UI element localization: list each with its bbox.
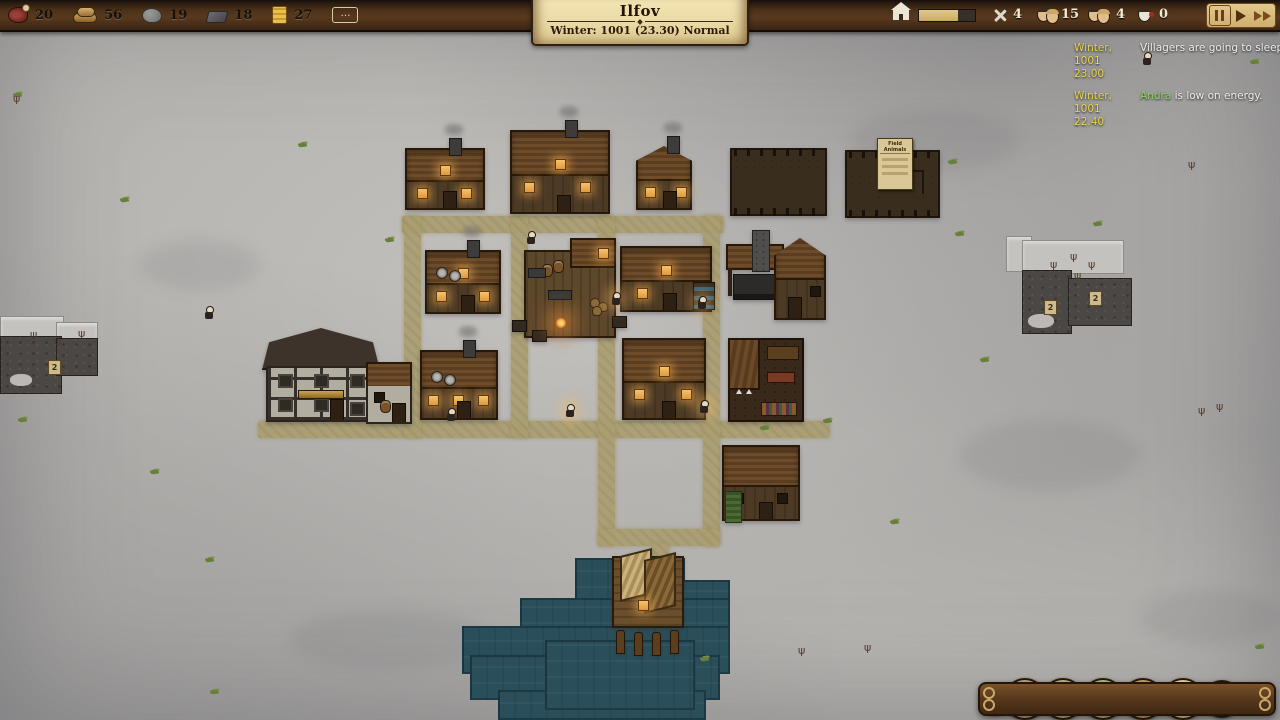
grass-tuft <box>890 519 899 524</box>
sick-icon <box>1138 7 1151 22</box>
barrel <box>380 400 391 413</box>
window <box>314 398 329 412</box>
scroll-curl <box>983 687 995 699</box>
pause-button[interactable] <box>1210 6 1230 25</box>
lit-window <box>661 265 672 276</box>
lit-window <box>681 389 692 400</box>
resource-wood[interactable]: 56 <box>73 7 122 23</box>
dead-shrub: ψ <box>1188 160 1195 170</box>
play-icon <box>1236 10 1246 22</box>
date-weather-label: Winter: 1001 (23.30) Normal <box>533 24 747 38</box>
villager[interactable] <box>566 404 574 417</box>
goods-rack <box>761 402 797 416</box>
building-house-0[interactable] <box>405 148 485 210</box>
lit-window <box>598 248 609 259</box>
chimney <box>449 138 462 156</box>
game-viewport[interactable]: Field Animalsψψψψψψψψψψψψψ222 20 56 19 1… <box>0 0 1280 720</box>
roof <box>405 148 485 182</box>
notification[interactable]: Winter, 1001 22.40 Andra is low on energ… <box>1074 90 1278 129</box>
chimney-smoke <box>459 326 477 336</box>
building-smithy[interactable] <box>726 238 826 320</box>
lit-window <box>580 182 591 193</box>
field-sign[interactable]: Field Animals <box>877 138 913 190</box>
work-table <box>528 268 546 278</box>
fence <box>734 208 823 216</box>
door <box>663 191 677 208</box>
workbench <box>767 372 795 383</box>
sick-count: 0 <box>1159 7 1168 22</box>
lit-window <box>478 395 489 406</box>
lit-window <box>555 159 566 170</box>
wood-icon <box>73 13 97 23</box>
construction-markers <box>736 379 756 398</box>
villager[interactable] <box>447 408 455 421</box>
dead-shrub: ψ <box>78 329 85 339</box>
lit-window <box>436 291 447 302</box>
lit-window <box>638 600 649 611</box>
lit-window <box>659 366 670 377</box>
lit-window <box>676 187 687 198</box>
snow-patch <box>1028 314 1054 328</box>
iron-count: 18 <box>234 8 252 23</box>
notification-message: Andra is low on energy. <box>1140 90 1262 129</box>
scroll-curl <box>1259 699 1271 711</box>
more-resources-button[interactable]: … <box>332 7 358 23</box>
grass-tuft <box>980 357 989 362</box>
play-button[interactable] <box>1231 6 1251 25</box>
wood-count: 56 <box>104 8 122 23</box>
shield-decor-icon <box>449 270 461 282</box>
building-house-2[interactable] <box>636 146 692 210</box>
grass-tuft <box>150 469 159 474</box>
villager[interactable] <box>700 400 708 413</box>
grass-tuft <box>948 159 957 164</box>
field-sign-title: Field Animals <box>880 141 910 154</box>
door <box>557 195 571 212</box>
window <box>777 493 788 504</box>
storage-hut <box>570 238 616 268</box>
grass-tuft <box>955 231 964 236</box>
notification-date: Winter, 1001 22.40 <box>1074 90 1134 129</box>
storage-shelf <box>767 346 799 360</box>
ellipsis-icon: … <box>332 7 358 23</box>
dead-shrub: ψ <box>30 330 37 340</box>
iron-icon <box>206 11 229 23</box>
grass-tuft <box>205 557 214 562</box>
chimney-smoke <box>664 122 682 132</box>
shield-decor-icon <box>431 371 443 383</box>
dead-shrub: ψ <box>864 643 871 653</box>
roof <box>622 338 706 383</box>
main-menu-toolbar <box>978 682 1276 716</box>
notification-subject: Andra <box>1140 90 1171 102</box>
crate <box>612 316 627 328</box>
fence <box>849 210 936 218</box>
military-count: 4 <box>1013 7 1022 22</box>
crate <box>532 330 547 342</box>
grass-tuft <box>120 197 129 202</box>
annex <box>366 362 412 424</box>
elevation-marker: 2 <box>1044 300 1057 315</box>
roof <box>620 246 712 282</box>
settlement-name: Ilfov <box>533 3 747 19</box>
building-field-pen-4[interactable]: Field Animals <box>845 150 940 218</box>
building-house-13[interactable] <box>722 445 800 521</box>
door <box>330 399 344 420</box>
lit-window <box>524 182 535 193</box>
villager[interactable] <box>612 292 620 305</box>
meat-count: 20 <box>35 8 53 23</box>
dead-shrub: ψ <box>54 337 61 347</box>
building-house-10[interactable] <box>420 350 498 420</box>
dead-shrub: ψ <box>1070 252 1077 262</box>
work-table <box>548 290 572 300</box>
roof <box>366 362 412 388</box>
door <box>392 403 406 422</box>
grass-tuft <box>210 689 219 694</box>
post <box>728 268 732 296</box>
roof <box>722 445 800 487</box>
sack <box>592 306 602 316</box>
chimney-smoke <box>445 124 463 134</box>
population-count: 15 <box>1061 7 1079 22</box>
campfire[interactable] <box>556 318 566 328</box>
roof <box>420 350 498 389</box>
building-house-1[interactable] <box>510 130 610 214</box>
cliff-right <box>1006 234 1132 334</box>
chimney <box>463 340 476 358</box>
resource-meat[interactable]: 20 <box>8 7 53 23</box>
roof <box>636 146 692 181</box>
resource-gold[interactable]: 27 <box>272 6 312 24</box>
grass-tuft <box>298 142 307 147</box>
elevation-marker: 2 <box>1089 291 1102 306</box>
wall <box>510 176 610 214</box>
window <box>810 286 821 297</box>
shield-decor-icon <box>444 374 456 386</box>
door <box>663 293 677 310</box>
door <box>457 401 471 418</box>
window <box>314 374 329 388</box>
fence <box>734 148 823 156</box>
building-field-pen-3[interactable] <box>730 148 827 216</box>
wall <box>420 389 498 420</box>
plant-trellis <box>725 491 742 523</box>
housing-progress-bar <box>918 9 976 22</box>
roof <box>510 130 610 176</box>
dead-shrub: ψ <box>1074 271 1081 281</box>
chimney-smoke <box>463 226 481 236</box>
snow-patch <box>10 374 32 386</box>
lit-window <box>440 165 451 176</box>
forge-house <box>774 238 826 320</box>
roof <box>425 250 501 285</box>
resource-row: 20 56 19 18 27 … <box>8 0 358 30</box>
door <box>443 191 457 208</box>
lit-window <box>417 188 428 199</box>
dock-post <box>634 632 643 656</box>
door <box>788 297 802 318</box>
scroll-curl <box>1259 687 1271 699</box>
elevation-marker: 2 <box>48 360 61 375</box>
adults-icon <box>1097 9 1110 24</box>
dock-post <box>652 632 661 656</box>
window <box>350 374 365 388</box>
population-icon <box>1046 9 1059 24</box>
stone-icon <box>142 8 162 23</box>
building-house-11[interactable] <box>622 338 706 420</box>
door <box>461 295 475 312</box>
grass-tuft <box>18 417 27 422</box>
gold-count: 27 <box>294 8 312 23</box>
timber-frame-wall <box>266 366 376 422</box>
cliff-rock <box>56 338 98 376</box>
building-fishing-dock[interactable] <box>612 556 684 654</box>
chimney <box>467 240 480 258</box>
scroll-curl <box>983 699 995 711</box>
door <box>759 502 773 519</box>
dead-shrub: ψ <box>798 646 805 656</box>
notification[interactable]: Winter, 1001 23.00 Villagers are going t… <box>1074 42 1278 81</box>
lit-window <box>461 188 472 199</box>
crate <box>512 320 527 332</box>
housing-icon <box>893 10 909 20</box>
villager[interactable] <box>527 231 535 244</box>
wall <box>622 383 706 420</box>
wall <box>405 182 485 210</box>
fast-forward-icon <box>1263 11 1271 21</box>
notification-feed: Winter, 1001 23.00 Villagers are going t… <box>1074 42 1278 138</box>
fast-forward-icon <box>1254 11 1262 21</box>
grass-tuft <box>1093 221 1102 226</box>
dead-shrub: ψ <box>1216 402 1223 412</box>
military-icon <box>991 7 1009 24</box>
pause-icon <box>1215 10 1224 21</box>
notification-message: Villagers are going to sleep. <box>1140 42 1280 81</box>
building-manor-house[interactable] <box>262 328 412 426</box>
villager[interactable] <box>205 306 213 319</box>
grass-tuft <box>385 237 394 242</box>
lit-window <box>634 389 645 400</box>
dock-post <box>616 630 625 654</box>
barrel <box>553 260 564 273</box>
hanging-sign <box>298 390 344 399</box>
wall <box>636 181 692 210</box>
resource-iron[interactable]: 18 <box>207 8 252 23</box>
settlement-banner: Ilfov Winter: 1001 (23.30) Normal <box>531 0 749 46</box>
resource-stone[interactable]: 19 <box>142 8 187 23</box>
lit-window <box>645 187 656 198</box>
dead-shrub: ψ <box>1050 260 1057 270</box>
grass-tuft <box>823 418 832 423</box>
roof <box>774 238 826 280</box>
dead-shrub: ψ <box>13 94 20 104</box>
lit-window <box>479 291 490 302</box>
time-controls <box>1206 3 1276 28</box>
wall <box>774 280 826 320</box>
dock-post <box>670 630 679 654</box>
grass-tuft <box>1255 644 1264 649</box>
building-house-5[interactable] <box>425 250 501 314</box>
gable-roof <box>262 328 380 370</box>
stone-furnace-chimney <box>752 230 770 272</box>
chimney-smoke <box>560 106 578 116</box>
wall <box>425 285 501 314</box>
fast-forward-button[interactable] <box>1252 6 1272 25</box>
stone-count: 19 <box>169 8 187 23</box>
lit-window <box>428 395 439 406</box>
window <box>350 402 365 416</box>
window <box>278 398 293 412</box>
building-market-platform[interactable] <box>524 238 616 338</box>
adults-count: 4 <box>1116 7 1125 22</box>
housing-progress-fill <box>919 10 958 21</box>
villager[interactable] <box>698 296 706 309</box>
window <box>278 374 293 388</box>
lit-window <box>637 288 648 299</box>
chimney <box>565 120 578 138</box>
shield-decor-icon <box>436 267 448 279</box>
dirt-road <box>402 216 724 233</box>
notification-date: Winter, 1001 23.00 <box>1074 42 1134 81</box>
chimney <box>667 136 680 154</box>
gold-icon <box>272 6 287 24</box>
dead-shrub: ψ <box>1198 406 1205 416</box>
dead-shrub: ψ <box>1088 260 1095 270</box>
meat-icon <box>8 7 28 23</box>
door <box>662 401 676 418</box>
building-workshop[interactable] <box>728 338 804 422</box>
